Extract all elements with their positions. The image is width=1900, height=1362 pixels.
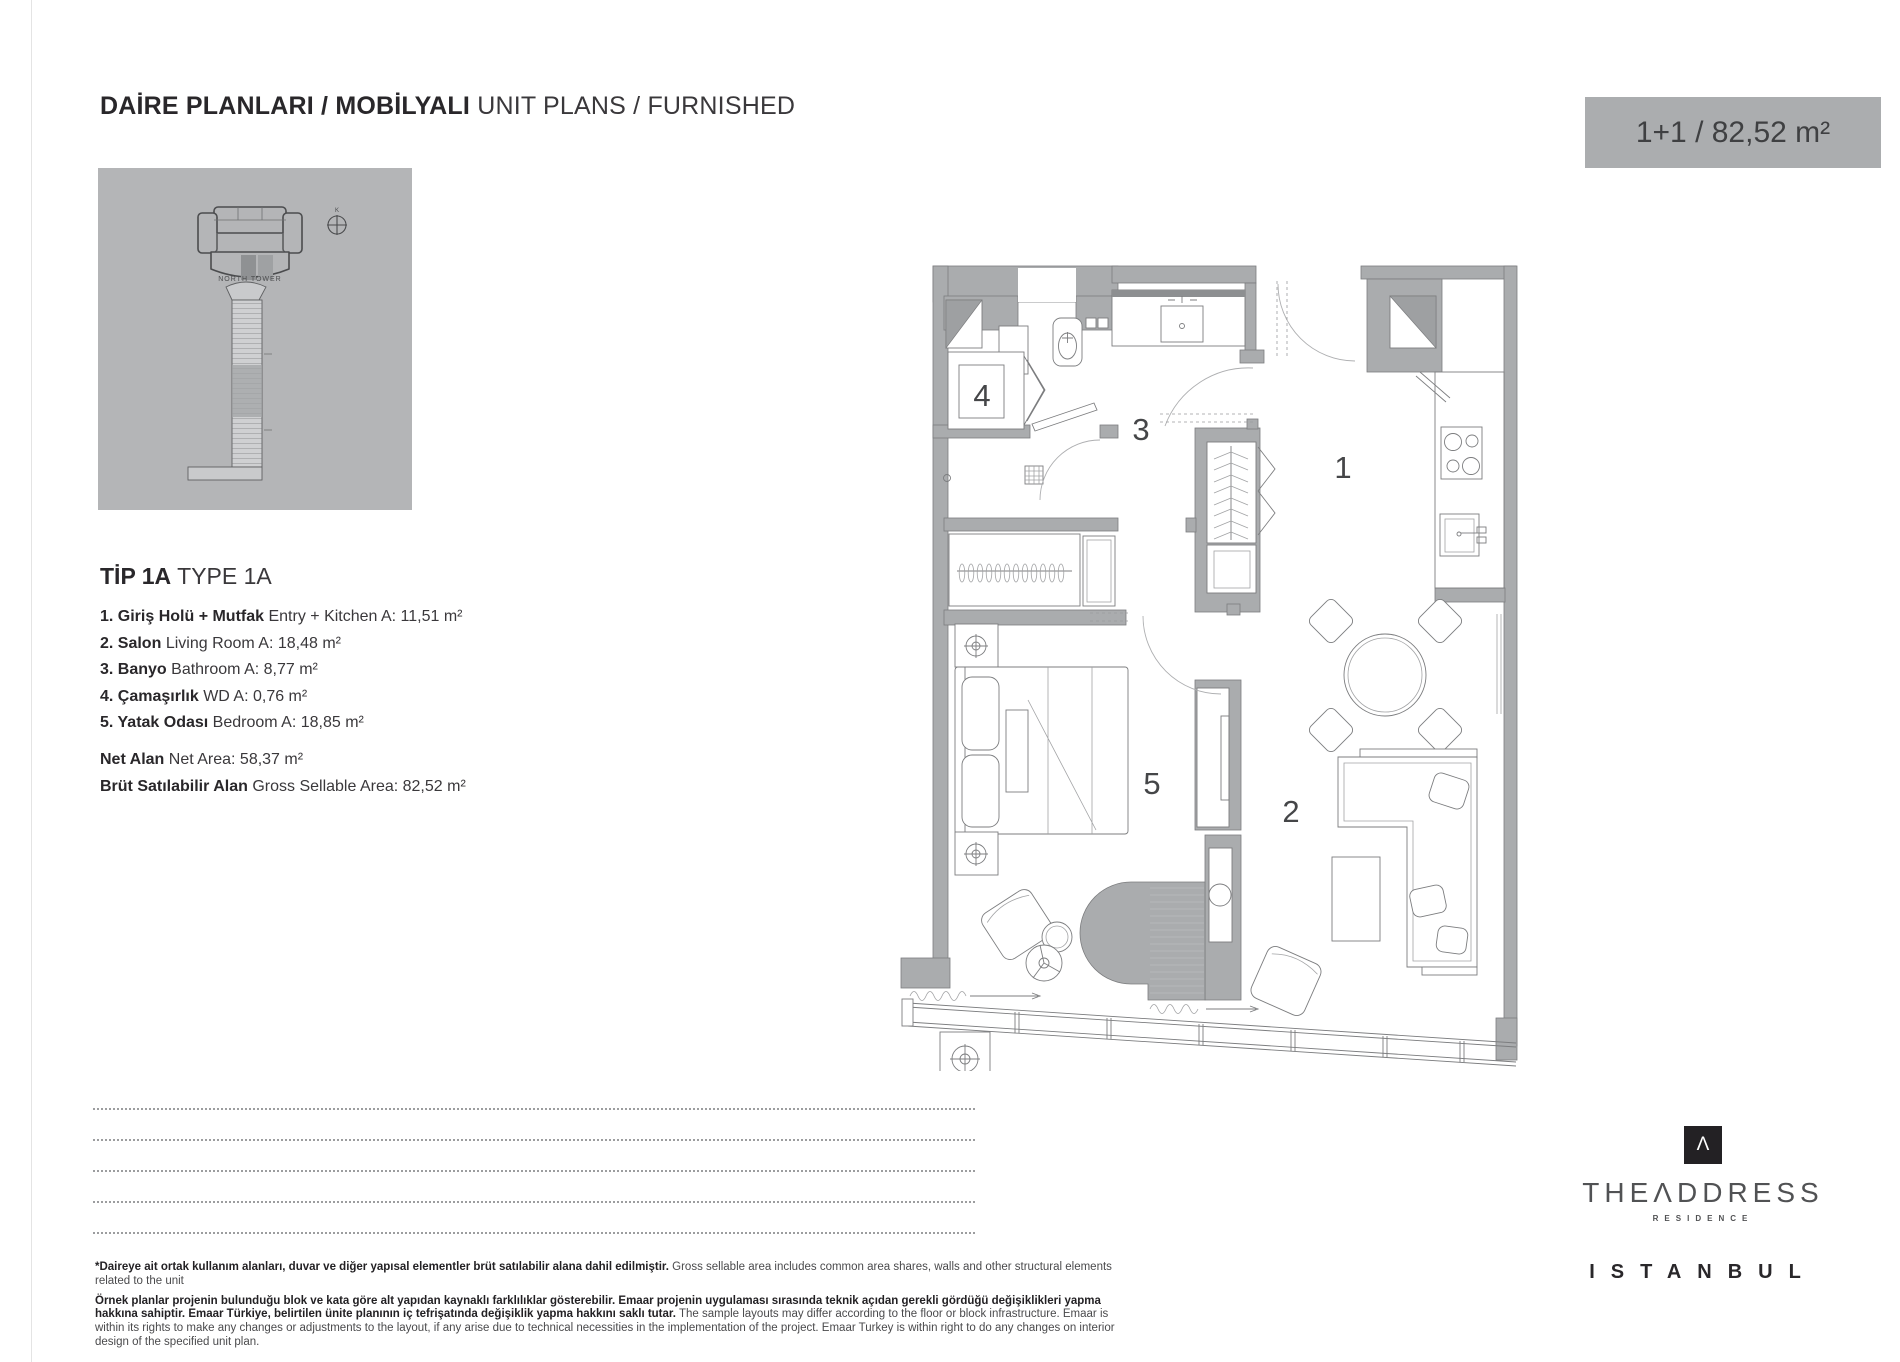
wd-closet [948, 352, 1045, 429]
room-list: 1. Giriş Holü + Mutfak Entry + Kitchen A… [100, 604, 463, 737]
disclaimer-paragraph-1: *Daireye ait ortak kullanım alanları, du… [95, 1261, 1127, 1289]
dining-table [1307, 597, 1464, 754]
room-list-item: 1. Giriş Holü + Mutfak Entry + Kitchen A… [100, 604, 463, 631]
right-window [1497, 614, 1501, 714]
disclaimer: *Daireye ait ortak kullanım alanları, du… [95, 1261, 1127, 1356]
bathroom-vanity [1112, 290, 1245, 346]
brand-block: Λ THEΛDDRESS RESIDENCE ISTANBUL [1553, 1126, 1853, 1284]
room-label-entry-kitchen: 1 [1334, 450, 1351, 485]
wardrobe-hangers [959, 564, 1064, 582]
room-label-wd: 4 [973, 378, 990, 413]
nightstand-top [955, 624, 998, 667]
dining-chair [1416, 597, 1464, 645]
dining-chair [1307, 597, 1355, 645]
room-list-item: 3. Banyo Bathroom A: 8,77 m² [100, 657, 463, 684]
net-area-line: Net Alan Net Area: 58,37 m² [100, 747, 466, 774]
nightstand-bottom [955, 832, 998, 875]
note-line [93, 1139, 975, 1141]
brochure-page: DAİRE PLANLARI / MOBİLYALI UNIT PLANS / … [0, 0, 1900, 1362]
bed [955, 667, 1128, 834]
kitchen-counter [1416, 372, 1504, 588]
key-plan-graphic: K NORTH TOWER [98, 168, 412, 510]
brand-name: THEΛDDRESS [1553, 1177, 1853, 1209]
area-totals: Net Alan Net Area: 58,37 m² Brüt Satılab… [100, 747, 466, 800]
gross-area-line: Brüt Satılabilir Alan Gross Sellable Are… [100, 774, 466, 801]
key-plan-panel: K NORTH TOWER [98, 168, 412, 510]
mirror-panel [1209, 848, 1232, 942]
north-letter: K [335, 208, 339, 214]
dining-chair [1416, 706, 1464, 754]
wall-recess [1018, 268, 1076, 302]
dining-chair [1307, 706, 1355, 754]
note-line [93, 1170, 975, 1172]
room-label-bedroom: 5 [1143, 766, 1160, 801]
shower [944, 466, 1044, 484]
tower-elevation [188, 282, 272, 480]
wardrobe [949, 534, 1115, 606]
shaft-right [1390, 296, 1436, 348]
room-list-item: 2. Salon Living Room A: 18,48 m² [100, 631, 463, 658]
unit-type-turkish: TİP 1A [100, 563, 171, 589]
tv-panel [1197, 688, 1229, 827]
floor-lamp [1026, 945, 1062, 981]
room-label-bathroom: 3 [1132, 412, 1149, 447]
page-title-english: UNIT PLANS / FURNISHED [477, 92, 795, 120]
unit-type-english: TYPE 1A [177, 563, 272, 589]
room-label-living: 2 [1282, 794, 1299, 829]
coffee-table [1332, 857, 1380, 941]
brand-division: RESIDENCE [1553, 1214, 1853, 1223]
shaft-left [946, 300, 982, 348]
note-line [93, 1232, 975, 1234]
bathroom-door [1032, 403, 1097, 431]
page-title: DAİRE PLANLARI / MOBİLYALI UNIT PLANS / … [100, 92, 795, 121]
unit-type-heading: TİP 1A TYPE 1A [100, 563, 272, 590]
note-line [93, 1201, 975, 1203]
toilet [1053, 318, 1108, 366]
note-line [93, 1108, 975, 1110]
north-arrow-icon [327, 215, 347, 235]
room-list-item: 5. Yatak Odası Bedroom A: 18,85 m² [100, 710, 463, 737]
disclaimer-paragraph-2: Örnek planlar projenin bulunduğu blok ve… [95, 1295, 1127, 1350]
brand-monogram-icon: Λ [1684, 1126, 1722, 1164]
column-detail [940, 1032, 990, 1071]
room-list-item: 4. Çamaşırlık WD A: 0,76 m² [100, 684, 463, 711]
page-edge-line [31, 0, 32, 1362]
floor-plan: 1 2 3 4 5 [898, 253, 1520, 1071]
brand-city: ISTANBUL [1553, 1261, 1853, 1284]
page-title-turkish: DAİRE PLANLARI / MOBİLYALI [100, 92, 470, 120]
unit-area-badge: 1+1 / 82,52 m² [1585, 97, 1881, 168]
living-armchair [1248, 944, 1324, 1019]
unit-area-badge-label: 1+1 / 82,52 m² [1636, 116, 1830, 150]
hall-closet [1207, 442, 1275, 593]
